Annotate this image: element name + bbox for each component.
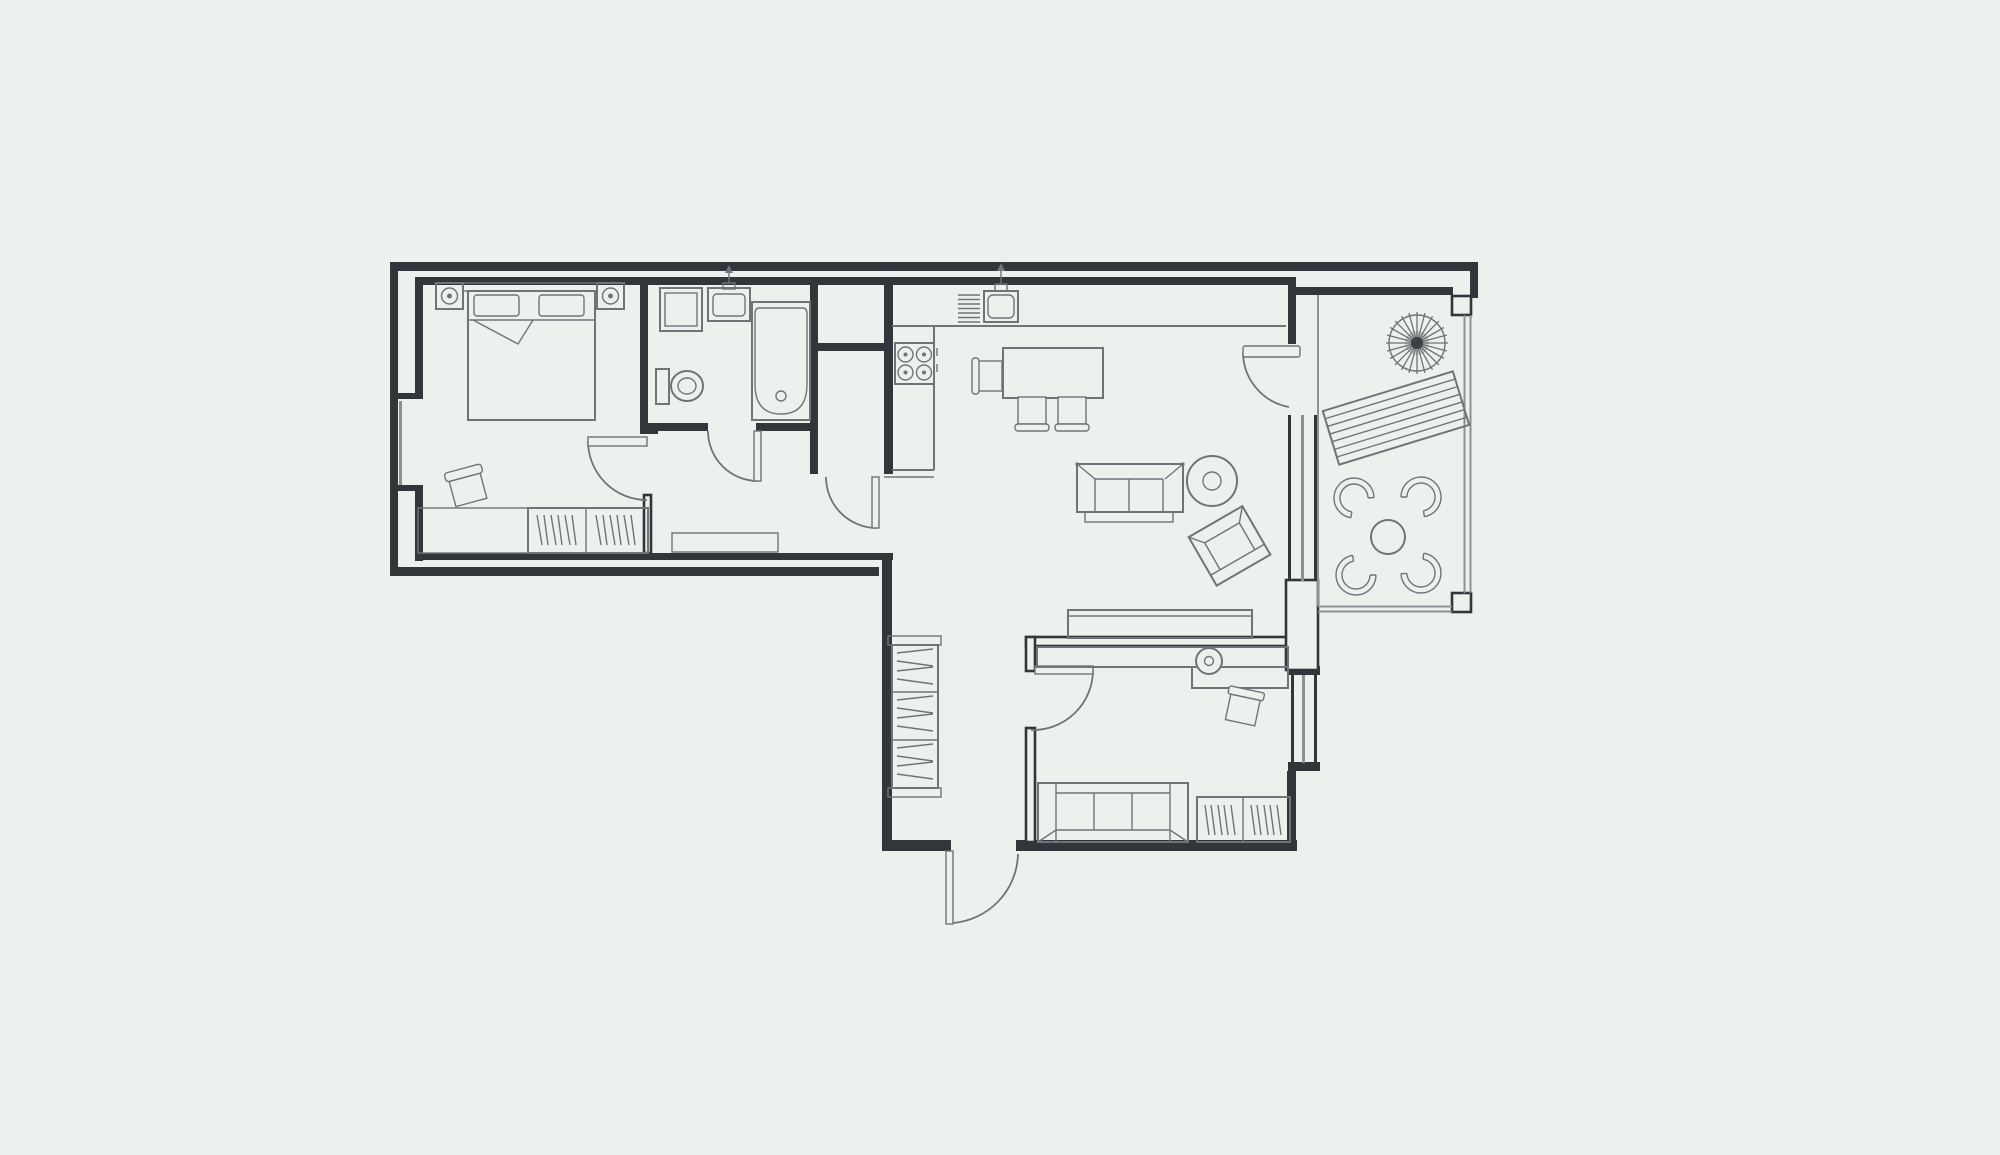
sun-lounger [1323,371,1469,464]
closet-door [826,477,879,528]
study-side-chair [1222,686,1264,727]
doors [588,346,1300,924]
bathtub [752,302,810,420]
floor-plan-canvas [0,0,2000,1155]
armchair [1189,506,1271,585]
study-sofa [1038,783,1188,842]
study-window-stub-bottom [1288,762,1320,771]
bottom-outer-wall [390,567,879,576]
bedroom-chair [444,464,490,508]
sideboard [1068,610,1252,638]
washing-machine [660,288,702,331]
balcony-wall-step [1294,287,1320,295]
bedroom-window [399,401,402,485]
shell-chair-1 [1326,470,1378,521]
entry-wall-left [882,840,951,851]
study-furniture [1037,647,1290,842]
balcony-door [1243,346,1300,407]
bathroom-bottom-wall-right [756,423,812,431]
balcony-furniture [1323,312,1469,603]
bathroom-door [708,431,761,481]
double-bed [468,291,595,420]
bathroom-sink [708,265,750,321]
study-left-wall-upper [1026,637,1035,671]
living-furniture [1068,456,1270,638]
desk-chair [1196,648,1222,674]
window-sill-top [390,393,423,399]
bathroom-bottom-wall-left [648,423,708,431]
bottom-inner-wall [415,553,893,560]
shell-chair-2 [1397,469,1449,520]
pillow-right [539,295,584,316]
corridor-left-wall [882,560,892,841]
drainer-icon [958,295,980,322]
top-outer-wall [390,262,1478,271]
railing-right [1465,315,1471,593]
bedroom-furniture [418,283,648,553]
dining-table [1003,348,1103,398]
study-left-wall-lower [1026,728,1035,842]
railing-post-bottom [1452,593,1471,612]
parasol [1386,312,1448,374]
shelf-cap-top [888,636,941,645]
shell-chair-3 [1328,552,1380,603]
dining-chair-left [972,358,1002,394]
left-inner-wall-upper [415,277,423,399]
shoe-cabinet [672,533,778,552]
study-right-wall-lower [1287,771,1296,842]
kitchen-fixtures [884,263,1286,477]
dining-chair-bottom-2 [1055,397,1089,431]
toilet [656,369,703,404]
entry-door [946,851,1018,924]
windows [399,401,1317,763]
study-window [1291,675,1317,763]
study-door [1031,666,1093,730]
wall-block-living-study [1286,580,1318,670]
hanger-marks-right [596,515,635,545]
kitchen-left-wall [884,277,893,474]
top-inner-wall [415,277,1294,285]
round-pouf [1187,456,1237,506]
drain-icon [776,391,786,401]
blanket-fold [468,320,595,344]
shelf-cap-bottom [888,788,941,797]
study-wardrobe [1197,797,1290,842]
railing-bottom [1318,607,1452,612]
corridor-shelf [888,636,941,797]
shelf-content-marks [897,649,933,779]
two-seat-sofa [1076,463,1185,523]
bedroom-door [588,437,647,500]
low-shelf [418,508,528,553]
railing-post-top [1452,296,1471,315]
hanger-marks-right [1251,805,1281,835]
window-sill-bottom [390,485,423,491]
shaft-wall [810,343,892,351]
dining-chair-bottom-1 [1015,397,1049,431]
bedroom-right-wall [640,277,648,434]
left-outer-wall [390,262,398,575]
shell-chair-4 [1398,550,1450,601]
balcony-top-wall [1318,287,1453,295]
kitchen-sink [958,263,1018,322]
stove [895,343,937,384]
balcony-window [1288,415,1317,581]
right-wall-cap [1470,271,1478,298]
pillow-left [474,295,519,316]
hanger-marks-left [1205,805,1235,835]
left-inner-wall-lower [415,491,423,561]
balcony-table [1371,520,1405,554]
hallway-furniture [672,533,778,552]
hanger-marks-left [537,515,576,545]
bathroom-fixtures [656,265,810,420]
bedroom-wardrobe [528,508,648,553]
desk-counter [1037,647,1288,667]
bathroom-right-wall [810,277,818,474]
